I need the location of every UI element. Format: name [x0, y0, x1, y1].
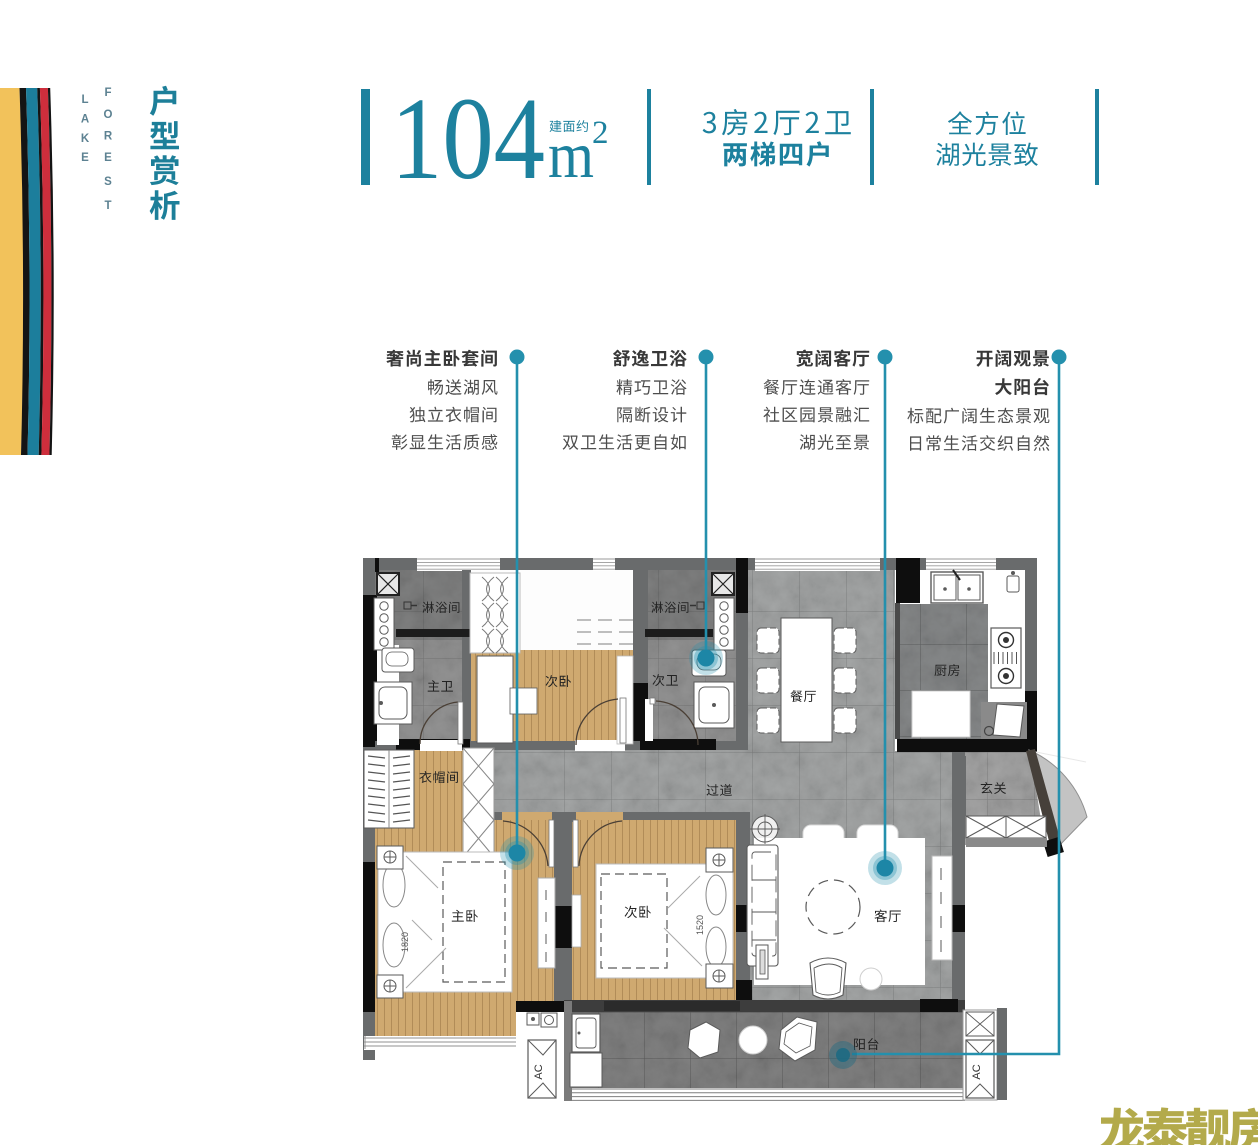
svg-text:E: E [104, 152, 112, 164]
svg-text:L: L [81, 94, 88, 106]
svg-text:104: 104 [391, 73, 545, 204]
svg-text:2: 2 [592, 115, 609, 151]
svg-text:1520: 1520 [695, 915, 705, 935]
svg-text:T: T [104, 200, 111, 212]
svg-text:S: S [104, 176, 112, 188]
svg-text:O: O [104, 109, 113, 121]
svg-text:R: R [104, 131, 113, 143]
svg-text:AC: AC [971, 1064, 983, 1079]
svg-text:A: A [81, 114, 89, 126]
svg-text:AC: AC [533, 1064, 545, 1079]
svg-text:K: K [81, 133, 90, 145]
svg-text:F: F [104, 87, 111, 99]
svg-text:1820: 1820 [400, 932, 410, 952]
svg-text:E: E [81, 152, 89, 164]
